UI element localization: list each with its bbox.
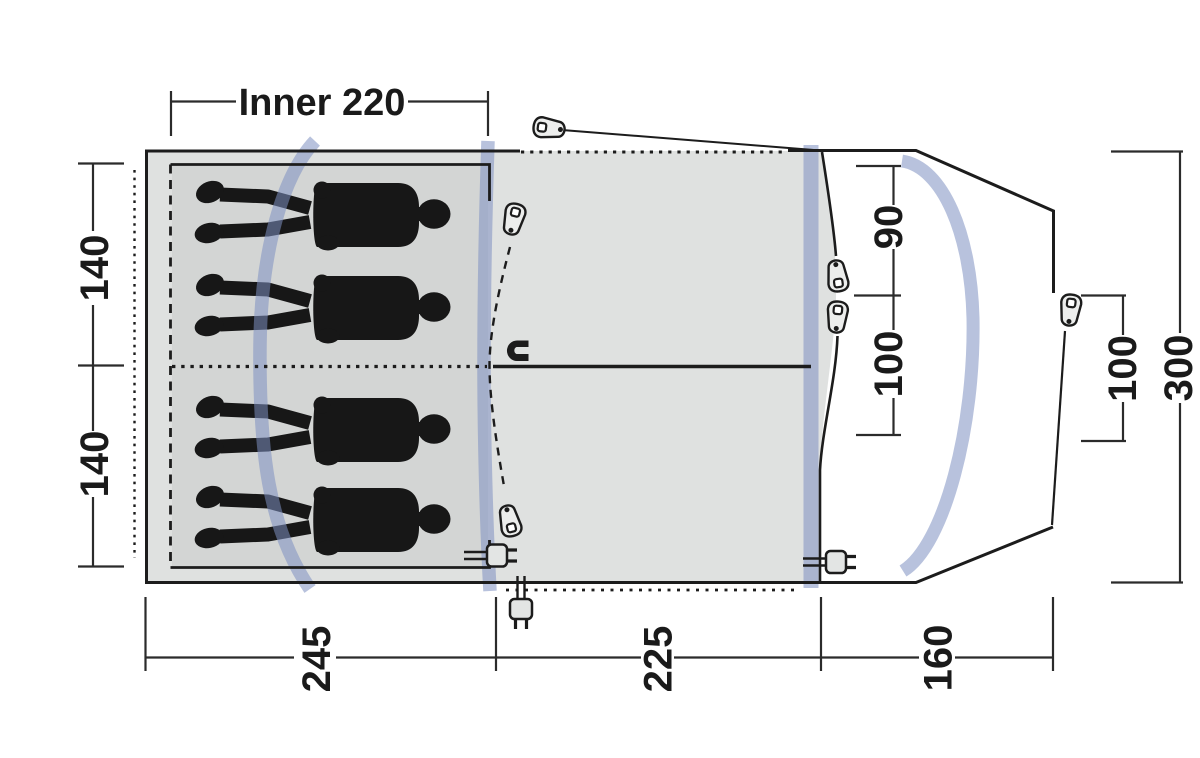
svg-text:140: 140: [73, 235, 117, 302]
svg-text:90: 90: [867, 205, 911, 250]
svg-text:100: 100: [1101, 335, 1145, 402]
svg-text:140: 140: [73, 431, 117, 498]
svg-text:100: 100: [867, 331, 911, 398]
svg-text:225: 225: [637, 626, 681, 693]
svg-text:245: 245: [295, 626, 339, 693]
svg-text:160: 160: [917, 625, 961, 692]
svg-text:Inner 220: Inner 220: [239, 82, 406, 124]
svg-text:300: 300: [1157, 335, 1200, 402]
